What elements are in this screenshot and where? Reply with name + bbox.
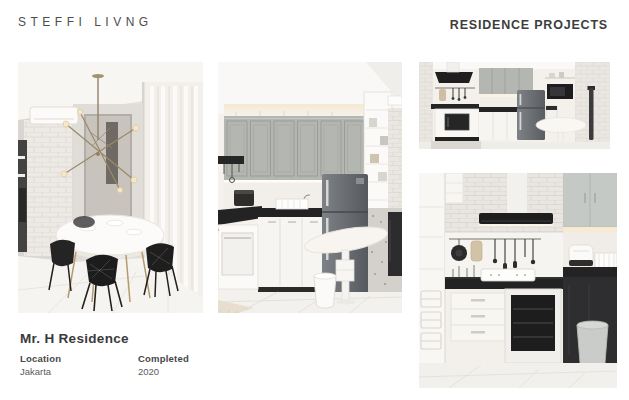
rice-cooker bbox=[569, 245, 593, 266]
project-meta: Location Jakarta Completed 2020 bbox=[20, 353, 256, 377]
trash-bin bbox=[314, 273, 336, 308]
corner-shelf bbox=[445, 173, 463, 203]
location-label: Location bbox=[20, 353, 138, 364]
completed-value: 2020 bbox=[138, 366, 256, 377]
induction-hob bbox=[481, 269, 535, 281]
completed-label: Completed bbox=[138, 353, 256, 364]
meta-location: Location Jakarta bbox=[20, 353, 138, 377]
upper-cabinets bbox=[224, 111, 366, 180]
built-in-oven bbox=[218, 225, 258, 289]
upper-cabinet bbox=[563, 173, 617, 227]
photo-kitchen-main bbox=[218, 62, 402, 313]
left-shelf-unit bbox=[419, 173, 445, 388]
dish-rack bbox=[595, 253, 617, 268]
location-value: Jakarta bbox=[20, 366, 138, 377]
project-name: Mr. H Residence bbox=[20, 331, 129, 346]
kitchen-wide-illustration bbox=[419, 62, 610, 149]
display-cabinet bbox=[364, 92, 392, 214]
meta-completed: Completed 2020 bbox=[138, 353, 256, 377]
photo-kitchen-detail bbox=[419, 173, 617, 388]
kitchen-main-illustration bbox=[218, 62, 402, 313]
brand-logo[interactable]: STEFFI LIVNG bbox=[18, 15, 153, 29]
kitchen-detail-illustration bbox=[419, 173, 617, 388]
page-title: RESIDENCE PROJECTS bbox=[450, 18, 608, 32]
photo-dining-area bbox=[18, 62, 203, 313]
photo-kitchen-wide bbox=[419, 62, 610, 149]
dining-area-illustration bbox=[18, 62, 203, 313]
drawers bbox=[451, 293, 505, 341]
